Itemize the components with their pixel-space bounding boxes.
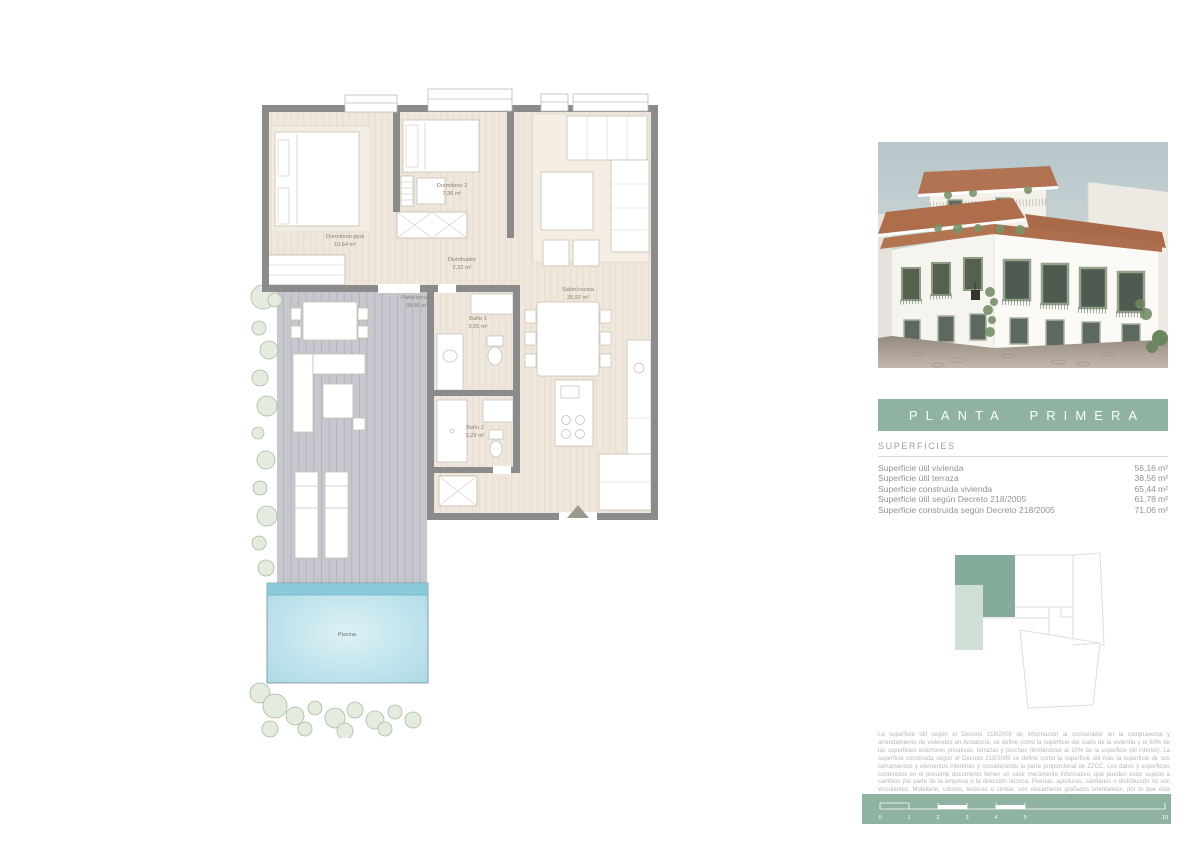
table-row: Superficie útil según Decreto 218/2005 6… [878, 494, 1168, 504]
room-label-bano-1: Baño 1 [469, 316, 487, 322]
entry-closet [439, 476, 477, 506]
pool-label: Piscina [338, 632, 357, 638]
floor-title-banner: PLANTA PRIMERA [878, 399, 1168, 431]
surface-label: Superficie útil según Decreto 218/2005 [878, 494, 1026, 504]
surface-value: 65,44m² [1134, 484, 1168, 494]
svg-text:10,64 m²: 10,64 m² [334, 242, 356, 248]
building-render-photo [878, 142, 1168, 368]
legal-disclaimer: La superficie útil según el Decreto 218/… [878, 732, 1170, 803]
room-label-patio-terraza: Patio/terraza [401, 295, 434, 301]
room-label-dormitorio-ppal: Dormitorio ppal [326, 234, 364, 240]
scale-bar-graphic: 0 1 2 3 4 5 10 [862, 794, 1171, 824]
svg-text:38,56 m²: 38,56 m² [406, 303, 428, 309]
scale-tick: 5 [1023, 815, 1026, 821]
surface-value: 38,56m² [1134, 473, 1168, 483]
room-label-distribuidor: Distribuidor [448, 257, 476, 263]
surfaces-heading: SUPERFICIES [878, 441, 1168, 457]
floor-title: PLANTA PRIMERA [901, 408, 1145, 423]
site-location-key [930, 545, 1130, 727]
table-row: Superficie construida según Decreto 218/… [878, 505, 1168, 515]
svg-text:2,32 m²: 2,32 m² [453, 265, 472, 271]
room-label-bano-2: Baño 2 [466, 425, 484, 431]
svg-text:20,92 m²: 20,92 m² [567, 295, 589, 301]
surface-label: Superficie útil vivienda [878, 463, 964, 473]
svg-text:7,36 m²: 7,36 m² [443, 191, 462, 197]
surfaces-table: SUPERFICIES Superficie útil vivienda 56,… [878, 441, 1168, 515]
room-label-dormitorio-2: Dormitorio 2 [437, 183, 467, 189]
surface-label: Superficie construida según Decreto 218/… [878, 505, 1055, 515]
scale-tick: 10 [1162, 815, 1168, 821]
table-row: Superficie útil vivienda 56,16m² [878, 463, 1168, 473]
scale-bar: 0 1 2 3 4 5 10 [862, 794, 1171, 824]
brochure-page: { "banner": { "title": "PLANTA PRIMERA" … [0, 0, 1200, 848]
svg-text:3,29 m²: 3,29 m² [466, 433, 485, 439]
table-row: Superficie construida vivienda 65,44m² [878, 484, 1168, 494]
surface-value: 71,06m² [1134, 505, 1168, 515]
surface-label: Superficie construida vivienda [878, 484, 992, 494]
surface-label: Superficie útil terraza [878, 473, 959, 483]
scale-tick: 1 [907, 815, 910, 821]
scale-tick: 4 [994, 815, 997, 821]
floor-plan: Dormitorio ppal 10,64 m² Dormitorio 2 7,… [245, 88, 665, 738]
surface-value: 56,16m² [1134, 463, 1168, 473]
windows [345, 89, 648, 112]
table-row: Superficie útil terraza 38,56m² [878, 473, 1168, 483]
svg-text:3,65 m²: 3,65 m² [469, 324, 488, 330]
scale-tick: 0 [878, 815, 881, 821]
surface-value: 61,78m² [1134, 494, 1168, 504]
scale-tick: 3 [965, 815, 968, 821]
highlighted-terrace [955, 585, 983, 650]
room-label-salon-cocina: Salón/cocina [562, 287, 595, 293]
scale-tick: 2 [936, 815, 939, 821]
